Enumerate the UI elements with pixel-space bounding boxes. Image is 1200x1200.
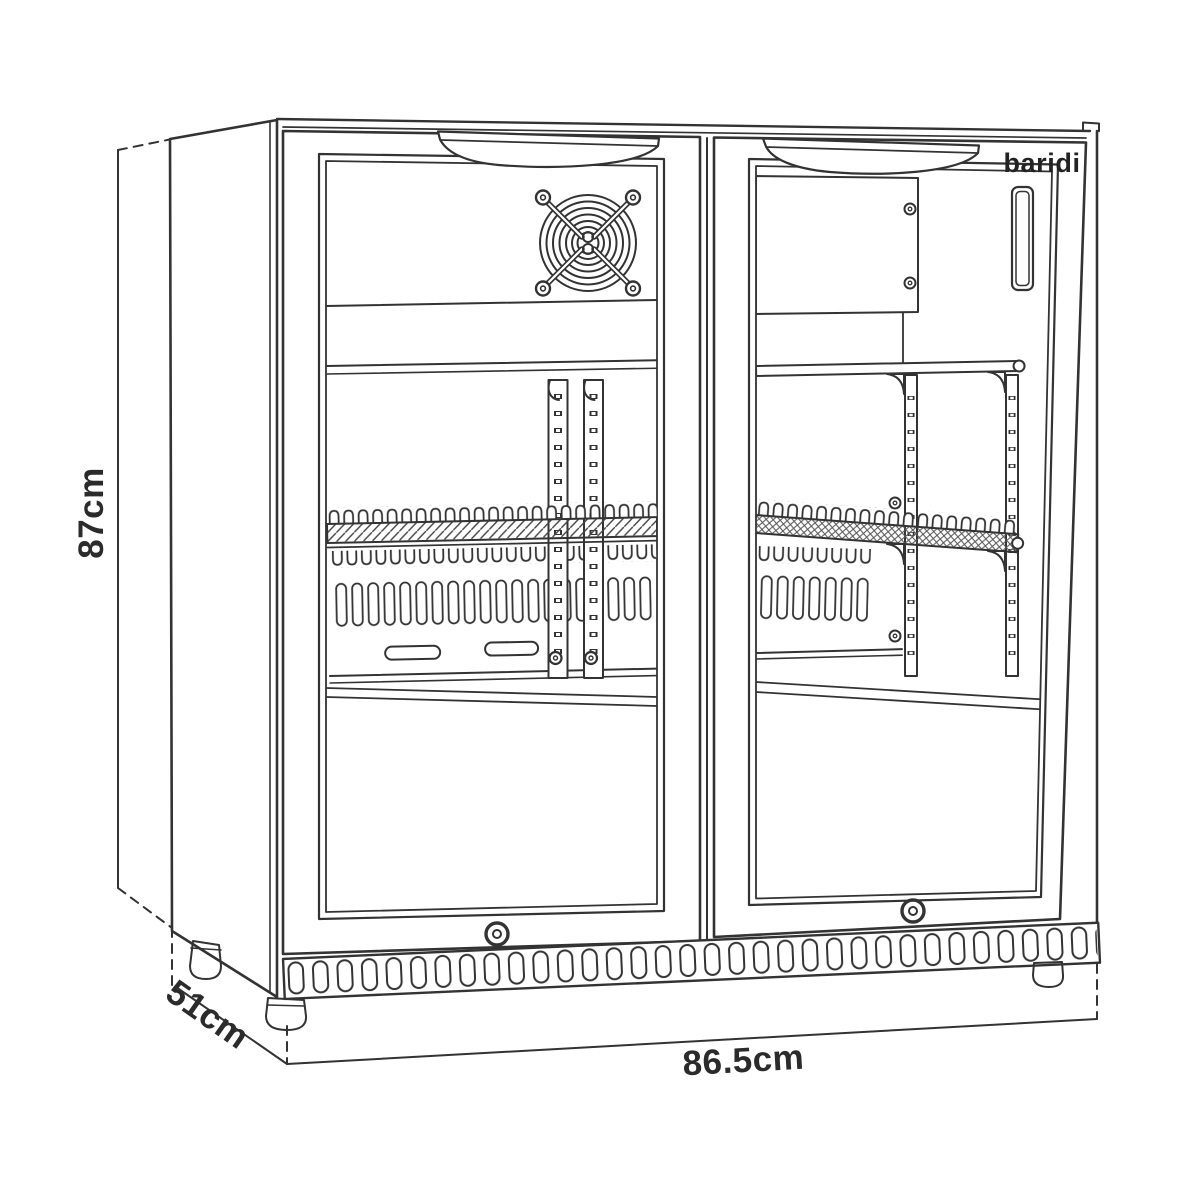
control-box	[756, 176, 918, 314]
brand-logo: baridi	[1003, 148, 1080, 178]
right-vent-oval-row	[758, 574, 869, 623]
left-vent-oval-row	[333, 575, 652, 628]
cabinet-side-panel	[170, 120, 277, 997]
height-extension-top	[118, 139, 172, 150]
height-dimension-label: 87cm	[72, 467, 111, 559]
foot-collar-line	[267, 1005, 305, 1006]
interior-light-bar	[1012, 187, 1033, 290]
width-dimension-label: 86.5cm	[682, 1038, 806, 1084]
right-vent-loop-row	[757, 546, 871, 566]
leveling-foot	[266, 998, 306, 1030]
depth-dimension-label: 51cm	[159, 972, 256, 1056]
diagram-canvas: baridi 87cm 51cm 86.5cm	[0, 0, 1200, 1200]
height-extension-bottom	[118, 888, 172, 928]
bar-fridge-dimension-diagram: baridi 87cm 51cm 86.5cm	[0, 0, 1200, 1200]
